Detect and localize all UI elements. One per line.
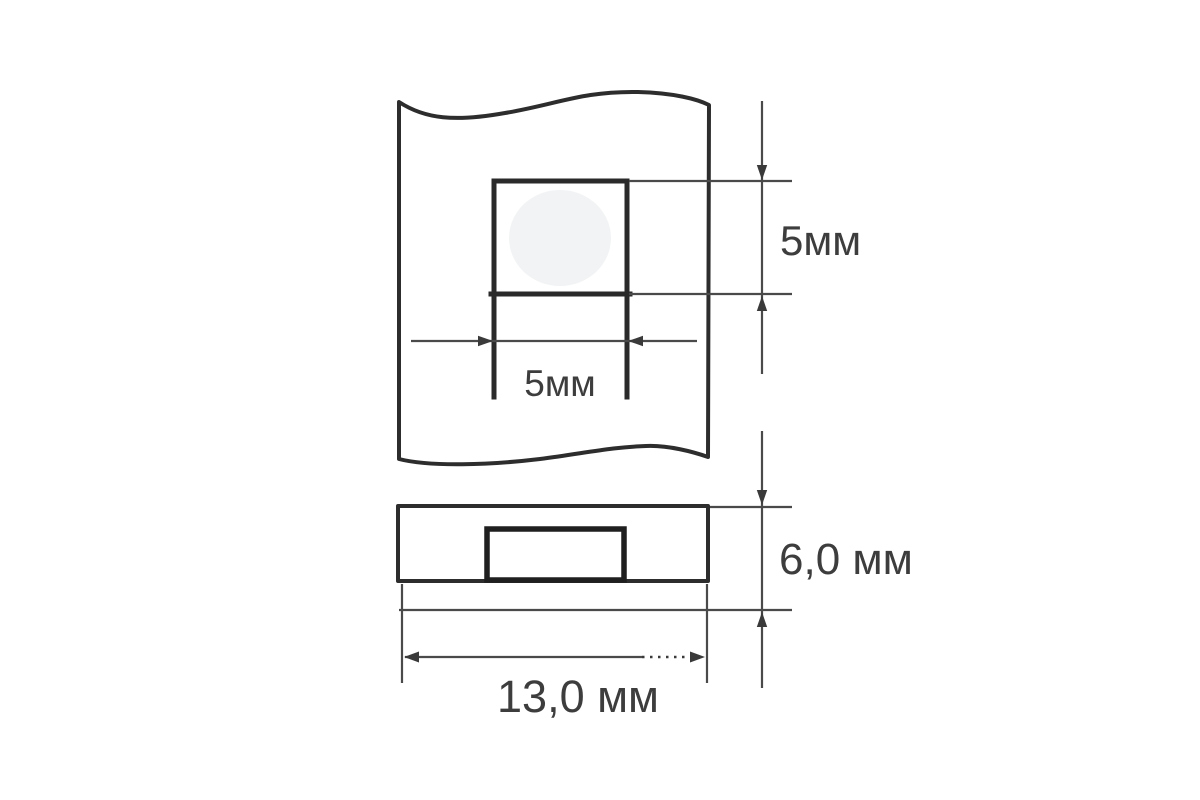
round-insert: [509, 190, 611, 286]
arrowhead-down: [757, 165, 767, 180]
arrowhead-right: [690, 652, 705, 663]
pocket-width-dimension: 5мм: [411, 336, 697, 404]
pocket-height-label: 5мм: [780, 217, 861, 264]
strip-height-label: 6,0 мм: [779, 535, 913, 584]
arrowhead-right: [478, 336, 493, 346]
strip-side-outline: [398, 506, 708, 581]
strip-height-dimension: 6,0 мм: [710, 431, 913, 688]
arrowhead-up: [757, 296, 767, 311]
strip-width-dimension: 13,0 мм: [402, 584, 707, 722]
drawing-canvas: 5мм 5мм 6,0 мм: [0, 0, 1200, 800]
pocket-side-outline: [487, 529, 624, 580]
arrowhead-up: [757, 612, 767, 627]
arrowhead-down: [757, 490, 767, 505]
arrowhead-left: [404, 652, 419, 663]
front-view: [399, 92, 709, 464]
arrowhead-left: [628, 336, 643, 346]
side-view: [398, 506, 792, 610]
pocket-width-label: 5мм: [524, 363, 595, 404]
technical-drawing: 5мм 5мм 6,0 мм: [0, 0, 1200, 800]
strip-width-label: 13,0 мм: [497, 671, 659, 722]
pocket-height-dimension: 5мм: [629, 101, 861, 374]
